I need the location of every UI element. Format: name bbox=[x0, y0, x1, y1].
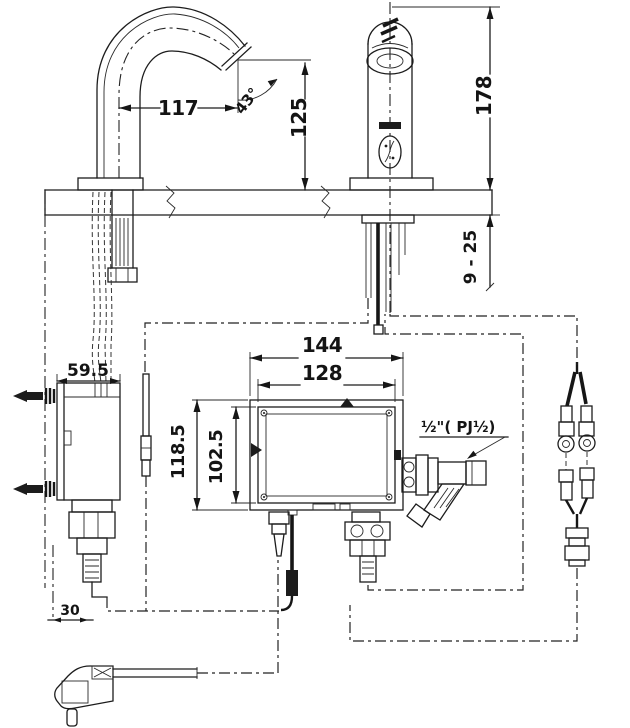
dim-outlet-offset: 30 bbox=[60, 603, 80, 619]
route-power bbox=[197, 560, 278, 673]
dimension-labels: 117 43° 125 178 9 - 25 144 128 118.5 102… bbox=[60, 76, 496, 619]
route-hose-top bbox=[390, 314, 577, 366]
inlet-label-leader bbox=[420, 437, 508, 459]
dim-box-inner-height: 102.5 bbox=[206, 430, 227, 484]
sensor-cable bbox=[281, 510, 298, 610]
supply-hose-assembly bbox=[558, 362, 595, 566]
dim-outlet-height: 125 bbox=[287, 98, 311, 138]
dim-total-height: 178 bbox=[472, 76, 496, 116]
mounting-screw bbox=[13, 388, 54, 404]
inlet-cap bbox=[466, 461, 486, 485]
dim-box-height: 118.5 bbox=[168, 425, 189, 479]
sensor-faucet-front-view bbox=[350, 2, 433, 334]
dim-deck-thickness: 9 - 25 bbox=[461, 230, 481, 284]
route-connector-join bbox=[107, 597, 279, 611]
label-inlet-connection: ½"( PJ½) bbox=[421, 418, 495, 436]
faucet-shank-nut bbox=[362, 215, 414, 223]
plug-pin bbox=[67, 709, 77, 726]
deck-break-mark bbox=[166, 186, 175, 218]
installation-drawing: 117 43° 125 178 9 - 25 144 128 118.5 102… bbox=[0, 0, 630, 728]
body-joint-mark bbox=[379, 122, 401, 129]
cable-connector-side-view bbox=[141, 374, 151, 476]
mounting-screw bbox=[13, 481, 54, 497]
dim-box-width: 144 bbox=[302, 333, 342, 357]
faucet-hoses bbox=[366, 223, 405, 334]
outlet-nut-fitting bbox=[345, 512, 390, 582]
faucet-base-flange bbox=[350, 178, 433, 190]
dim-box-inner-width: 128 bbox=[302, 361, 342, 385]
dim-controller-depth: 59.5 bbox=[67, 361, 109, 381]
stop-valve-assembly bbox=[394, 450, 486, 527]
power-plug bbox=[55, 666, 197, 726]
dimension-spout-reach bbox=[119, 60, 311, 113]
control-box-front-view bbox=[250, 398, 403, 610]
power-cable bbox=[113, 669, 197, 677]
mounting-tab bbox=[251, 443, 262, 457]
technical-drawing-svg: 117 43° 125 178 9 - 25 144 128 118.5 102… bbox=[0, 0, 630, 728]
route-hose-bottom bbox=[350, 568, 577, 641]
power-gland-fitting bbox=[269, 512, 289, 556]
dim-spout-angle: 43° bbox=[231, 84, 263, 117]
controller-outlet-fitting bbox=[69, 500, 115, 597]
spout-side-view bbox=[78, 7, 251, 383]
dimension-deck-thickness bbox=[486, 215, 500, 291]
deck-break-mark bbox=[321, 186, 330, 218]
spout-base-flange bbox=[78, 178, 143, 190]
controller-side-view bbox=[13, 383, 120, 617]
shank-nut bbox=[108, 268, 137, 282]
dim-spout-reach: 117 bbox=[158, 96, 198, 120]
